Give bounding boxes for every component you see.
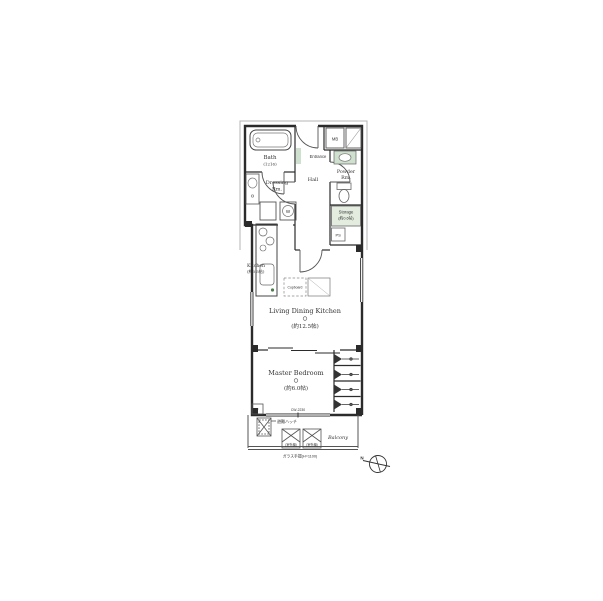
hall-label: Hall <box>308 177 319 183</box>
storage-size: (約0.6帖) <box>338 216 354 221</box>
powder-label-1: Powder <box>337 169 356 175</box>
dressing-label-1: Dressing <box>266 180 289 186</box>
outdoor-unit-1-label: (室外機) <box>285 442 297 447</box>
mb-label: MB <box>332 137 338 142</box>
compass-north-label: N <box>360 456 363 461</box>
bathtub-icon <box>253 133 288 147</box>
bedroom-size: (約6.0帖) <box>284 384 308 392</box>
room-entrance-hall: Entrance Hall <box>296 148 327 183</box>
compass-icon: N <box>360 456 390 473</box>
railing-note: ガラス手摺(H=1100) <box>283 454 318 459</box>
ldk-size: (約12.5帖) <box>291 322 319 330</box>
entrance-label: Entrance <box>310 154 327 159</box>
bath-size: (1216) <box>263 162 277 167</box>
kitchen-size: (約3.5帖) <box>247 268 265 274</box>
sliding-doors <box>268 348 340 353</box>
windows <box>251 258 363 418</box>
toilet-icon <box>337 183 351 190</box>
entrance-step <box>296 148 301 164</box>
dressing-label-2: Rm. <box>272 187 283 193</box>
room-bedroom: Master Bedroom (約6.0帖) F CW-2230 <box>252 354 359 414</box>
balcony-label: Balcony <box>327 435 348 441</box>
balcony: 避難ハッチ (室外機) (室外機) Balcony ガラス手摺(H=1100) <box>248 415 358 459</box>
floor-plan-page: Bath (1216) Dressing Rm. W Entrance Hall… <box>0 0 603 601</box>
window-dim-label: CW-2230 <box>291 408 305 412</box>
outdoor-unit-2-label: (室外機) <box>306 442 318 447</box>
cupboard-label: Cupboard <box>288 286 303 290</box>
evacuation-hatch <box>257 418 276 436</box>
bath-label: Bath <box>263 155 277 161</box>
room-powder: Powder Rm. <box>334 151 356 203</box>
fixed-window-label: F <box>256 407 259 412</box>
storage-label: Storage <box>339 210 354 215</box>
room-ldk: Living Dining Kitchen (約12.5帖) <box>269 307 341 330</box>
room-storage: Storage (約0.6帖) PS <box>332 206 361 241</box>
room-bath: Bath (1216) <box>250 130 291 167</box>
ldk-label: Living Dining Kitchen <box>269 307 341 315</box>
room-dressing: Dressing Rm. W <box>246 174 296 220</box>
closet-hangers <box>334 354 359 410</box>
floor-plan-svg: Bath (1216) Dressing Rm. W Entrance Hall… <box>0 0 603 601</box>
powder-label-2: Rm. <box>341 175 351 181</box>
meter-box: MB <box>326 128 361 148</box>
vanity-icon <box>246 174 259 204</box>
washer-label: W <box>286 209 291 214</box>
stove-icon <box>259 228 267 236</box>
room-kitchen: Kitchen (約3.5帖) Cupboard <box>247 224 330 296</box>
ps-label: PS <box>336 233 342 238</box>
bedroom-label: Master Bedroom <box>268 369 323 377</box>
hatch-note: 避難ハッチ <box>277 418 297 424</box>
